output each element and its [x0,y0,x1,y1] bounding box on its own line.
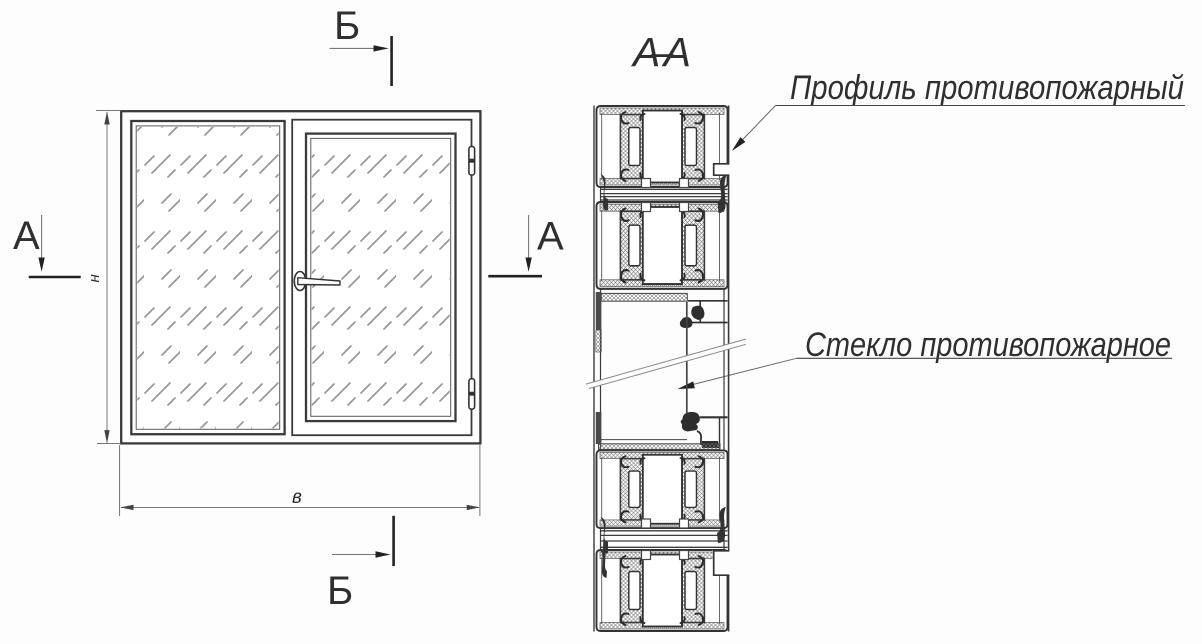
svg-text:Профиль противопожарный: Профиль противопожарный [790,69,1184,107]
svg-text:А: А [537,215,564,259]
svg-text:Б: Б [334,4,360,48]
svg-text:А: А [13,214,40,258]
svg-text:н: н [86,274,103,282]
svg-text:в: в [292,487,302,508]
svg-text:Б: Б [327,569,353,613]
svg-text:А–А: А–А [630,29,691,75]
